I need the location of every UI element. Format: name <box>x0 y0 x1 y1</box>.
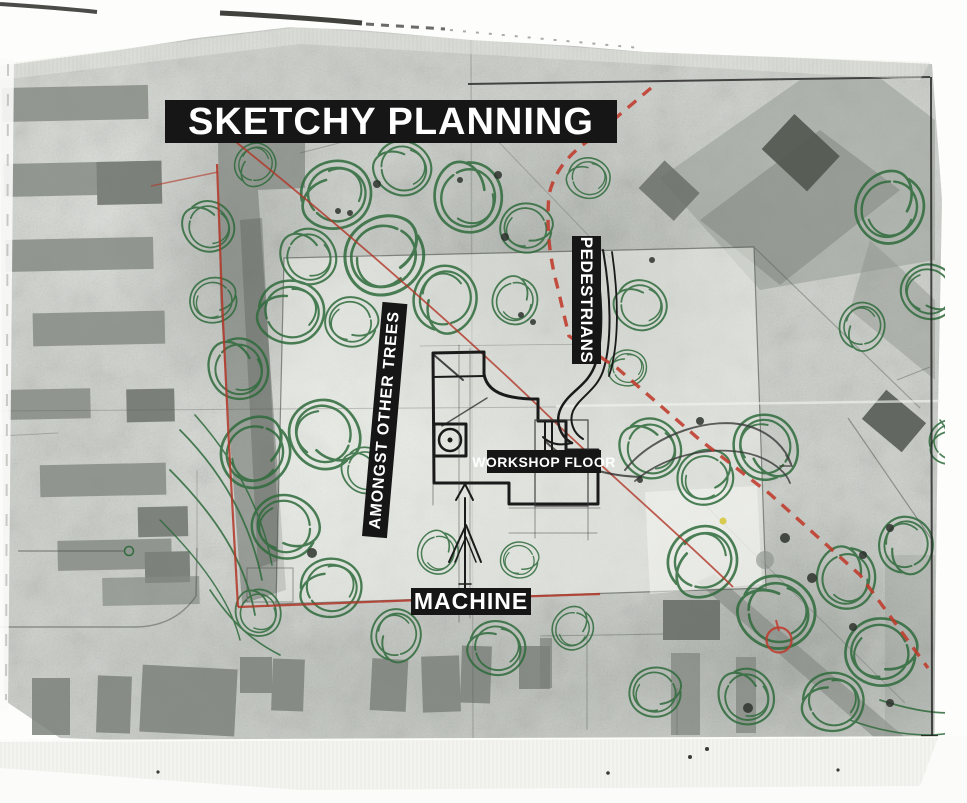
machine-label: MACHINE <box>411 588 531 615</box>
pedestrians-label: PEDESTRIANS <box>572 236 601 364</box>
title-banner: SKETCHY PLANNING <box>165 100 617 143</box>
sketch-site-plan: SKETCHY PLANNING PEDESTRIANS AMONGST OTH… <box>0 0 967 803</box>
workshop-floor-label: WORKSHOP FLOOR <box>487 450 601 473</box>
